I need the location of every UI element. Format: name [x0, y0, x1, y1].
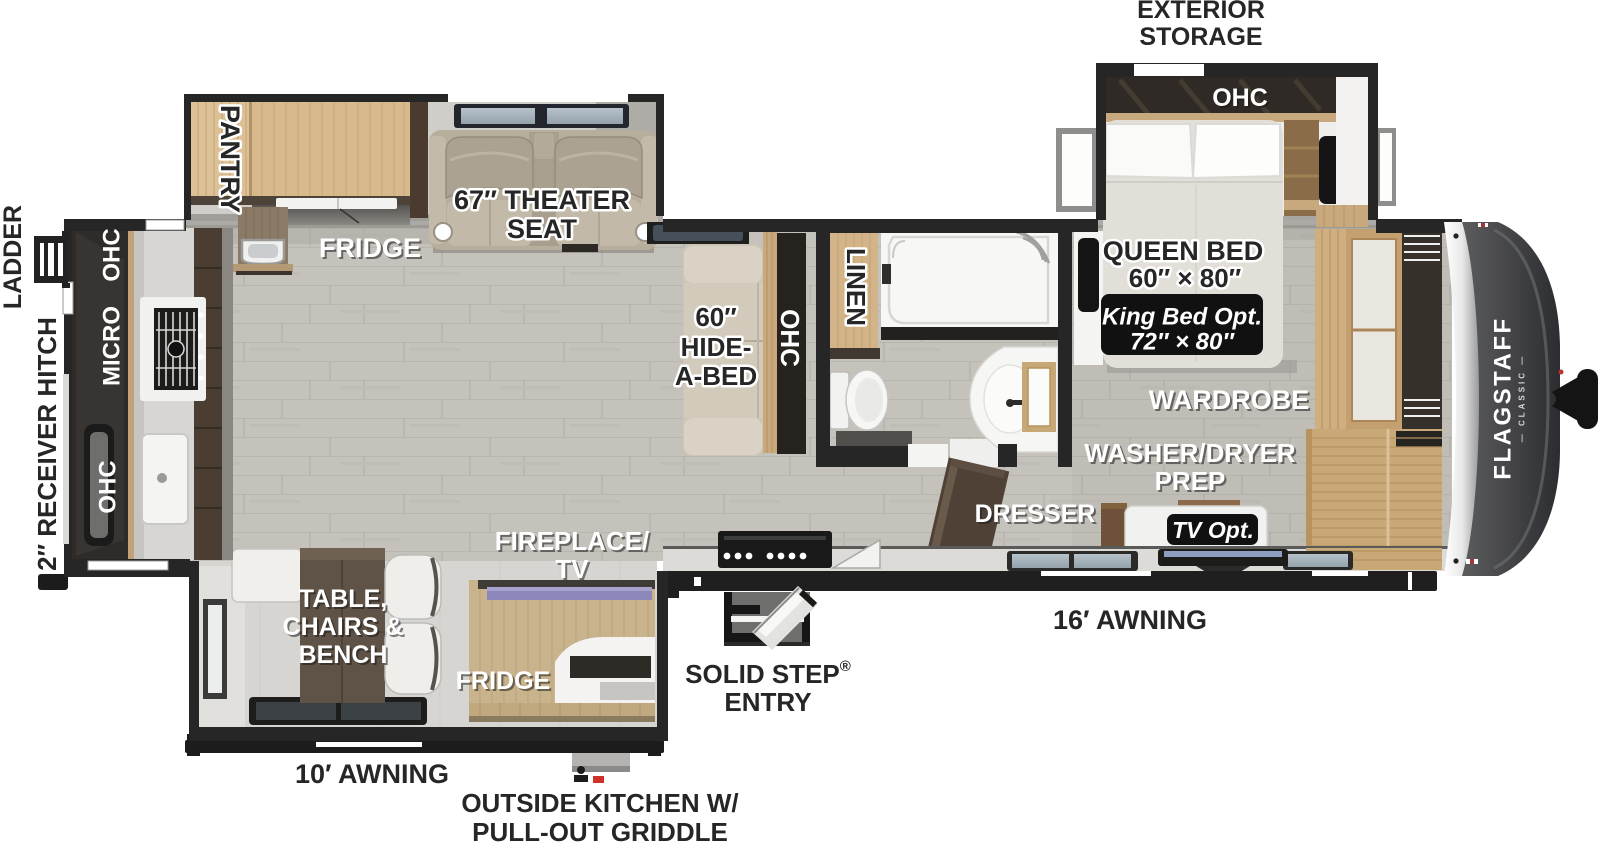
svg-text:PREP: PREP — [1155, 466, 1226, 496]
svg-text:SEAT: SEAT — [507, 214, 578, 244]
svg-text:LINEN: LINEN — [841, 248, 871, 326]
svg-text:LADDER: LADDER — [0, 205, 27, 309]
svg-text:EXTERIOR: EXTERIOR — [1137, 0, 1265, 24]
svg-text:A-BED: A-BED — [675, 361, 757, 391]
svg-text:TABLE,: TABLE, — [299, 585, 387, 613]
svg-text:10′ AWNING: 10′ AWNING — [295, 759, 449, 789]
svg-text:FIREPLACE/: FIREPLACE/ — [495, 526, 650, 556]
svg-text:PANTRY: PANTRY — [215, 105, 245, 213]
svg-text:PULL-OUT GRIDDLE: PULL-OUT GRIDDLE — [472, 817, 728, 846]
svg-text:WARDROBE: WARDROBE — [1149, 385, 1310, 415]
svg-text:STORAGE: STORAGE — [1139, 23, 1262, 51]
svg-text:16′ AWNING: 16′ AWNING — [1053, 605, 1207, 635]
svg-text:OHC: OHC — [775, 309, 805, 367]
svg-text:OHC: OHC — [95, 460, 122, 513]
svg-text:67″ THEATER: 67″ THEATER — [454, 185, 630, 215]
svg-text:OHC: OHC — [1212, 84, 1268, 112]
svg-text:BENCH: BENCH — [299, 641, 388, 669]
svg-text:King Bed Opt.: King Bed Opt. — [1102, 304, 1262, 331]
svg-text:FRIDGE: FRIDGE — [319, 233, 421, 263]
svg-text:DRESSER: DRESSER — [975, 500, 1096, 528]
svg-text:CHAIRS &: CHAIRS & — [283, 613, 404, 641]
svg-text:WASHER/DRYER: WASHER/DRYER — [1084, 438, 1296, 468]
svg-text:2″ RECEIVER HITCH: 2″ RECEIVER HITCH — [32, 317, 62, 571]
svg-text:FRIDGE: FRIDGE — [456, 667, 550, 695]
svg-text:ENTRY: ENTRY — [724, 687, 811, 717]
svg-text:60″: 60″ — [695, 302, 736, 332]
svg-text:72″ × 80″: 72″ × 80″ — [1130, 329, 1235, 356]
svg-text:OHC: OHC — [99, 228, 126, 281]
svg-text:SOLID STEP®: SOLID STEP® — [685, 658, 851, 690]
svg-text:QUEEN BED: QUEEN BED — [1103, 236, 1264, 266]
svg-text:TV Opt.: TV Opt. — [1172, 517, 1254, 543]
svg-text:TV: TV — [555, 554, 589, 584]
svg-text:OUTSIDE KITCHEN W/: OUTSIDE KITCHEN W/ — [461, 788, 738, 818]
svg-text:MICRO: MICRO — [99, 306, 126, 386]
svg-text:FLAGSTAFF: FLAGSTAFF — [1490, 316, 1517, 479]
svg-text:60″ × 80″: 60″ × 80″ — [1129, 263, 1241, 293]
svg-text:HIDE-: HIDE- — [681, 332, 752, 362]
svg-text:— CLASSIC —: — CLASSIC — — [1518, 354, 1527, 443]
